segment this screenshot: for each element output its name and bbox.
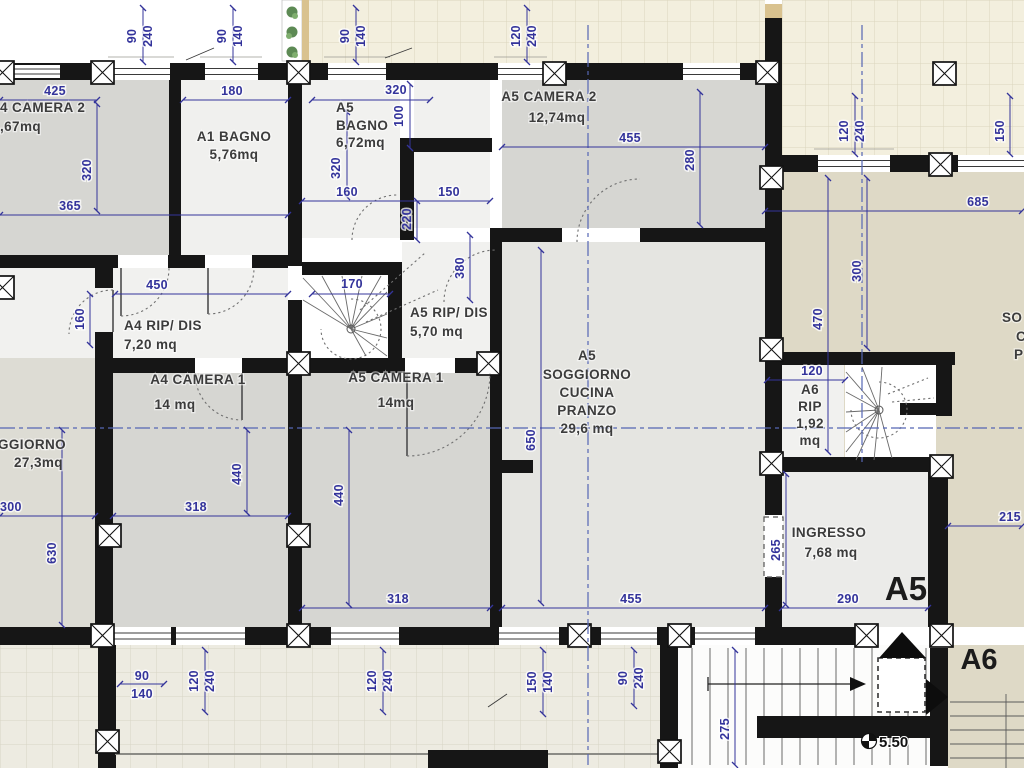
- dim-440-left: 440: [230, 463, 244, 485]
- door-opening: [176, 627, 245, 645]
- dim-320-top: 320: [385, 83, 407, 97]
- win-dim-150: 150: [993, 120, 1007, 142]
- room-a5-bagno-l2: BAGNO: [336, 118, 388, 133]
- dim-318-right: 318: [387, 592, 409, 606]
- floorplan-drawing: 5.50 425 180 320 365 450 170 455 685 160…: [0, 0, 1024, 768]
- room-a5-soggiorno-l3: CUCINA: [560, 385, 615, 400]
- room-soggiorno-left-area: 27,3mq: [14, 455, 63, 470]
- dim-180: 180: [221, 84, 243, 98]
- room-a5-soggiorno-l4: PRANZO: [557, 403, 616, 418]
- win-dim-120: 120: [509, 25, 523, 47]
- pillar: [760, 338, 783, 361]
- room-a1-bagno-name: A1 BAGNO: [197, 129, 271, 144]
- dim-265: 265: [769, 539, 783, 561]
- dim-280: 280: [683, 149, 697, 171]
- pillar: [287, 352, 310, 375]
- level-marker: 5.50: [862, 734, 909, 752]
- room-ingresso-name: INGRESSO: [792, 525, 866, 540]
- dim-318-left: 318: [185, 500, 207, 514]
- window: [683, 63, 740, 80]
- room-a5-camera2-area: 12,74mq: [529, 110, 586, 125]
- level-value: 5.50: [879, 734, 908, 751]
- dim-170: 170: [341, 277, 363, 291]
- dim-120-a6: 120: [801, 364, 823, 378]
- pillar: [760, 452, 783, 475]
- dim-455-top: 455: [619, 131, 641, 145]
- room-a6-rip-l1: A6: [801, 382, 819, 397]
- pillar: [855, 624, 878, 647]
- window: [818, 155, 890, 172]
- win-dim-240: 240: [203, 670, 217, 692]
- win-dim-120: 120: [837, 120, 851, 142]
- pillar: [477, 352, 500, 375]
- room-a4-camera1-name: A4 CAMERA 1: [150, 372, 246, 387]
- room-a5-camera1-name: A5 CAMERA 1: [348, 370, 444, 385]
- room-a4-camera2-area: ,67mq: [0, 119, 41, 134]
- win-dim-140: 140: [541, 671, 555, 693]
- plant-icon: [286, 7, 298, 59]
- room-ingresso-area: 7,68 mq: [804, 545, 857, 560]
- room-a5-bagno-l1: A5: [336, 100, 354, 115]
- pillar: [287, 624, 310, 647]
- pillar: [929, 153, 952, 176]
- window: [498, 63, 543, 80]
- room-a5-soggiorno-l2: SOGGIORNO: [543, 367, 631, 382]
- pillar: [760, 166, 783, 189]
- room-soggiorno-left-name: GGIORNO: [0, 437, 66, 452]
- floorplan-canvas: 5.50 425 180 320 365 450 170 455 685 160…: [0, 0, 1024, 768]
- win-dim-240: 240: [141, 25, 155, 47]
- room-a4-camera2-name: 4 CAMERA 2: [0, 100, 85, 115]
- win-dim-120: 120: [365, 670, 379, 692]
- window: [112, 63, 170, 80]
- window: [113, 627, 171, 645]
- pillar: [756, 61, 779, 84]
- pillar: [668, 624, 691, 647]
- dim-650: 650: [524, 429, 538, 451]
- dim-300-right: 300: [850, 260, 864, 282]
- dim-440-right: 440: [332, 484, 346, 506]
- dim-455-bottom: 455: [620, 592, 642, 606]
- window: [499, 627, 559, 645]
- room-a6-soggiorno-frag3: P: [1014, 347, 1023, 362]
- pillar: [0, 276, 14, 299]
- room-a5-soggiorno-l1: A5: [578, 348, 596, 363]
- window: [958, 155, 1024, 172]
- dim-450: 450: [146, 278, 168, 292]
- win-dim-240: 240: [381, 670, 395, 692]
- pillar: [930, 455, 953, 478]
- room-a6-soggiorno-frag1: SO: [1002, 310, 1022, 325]
- win-dim-240: 240: [525, 25, 539, 47]
- window: [205, 63, 258, 80]
- win-dim-90: 90: [616, 671, 630, 686]
- room-a6-rip-l2: RIP: [798, 399, 822, 414]
- win-dim-150: 150: [525, 671, 539, 693]
- pillar: [91, 624, 114, 647]
- pillar: [0, 61, 14, 84]
- win-dim-90: 90: [125, 29, 139, 44]
- room-a4-rip-area: 7,20 mq: [124, 337, 177, 352]
- room-a5-rip-name: A5 RIP/ DIS: [410, 305, 488, 320]
- dim-685: 685: [967, 195, 989, 209]
- win-dim-140: 140: [231, 25, 245, 47]
- pillar-freestanding: [933, 62, 956, 85]
- dim-160-bagno: 160: [336, 185, 358, 199]
- dim-220: 220: [400, 208, 414, 230]
- room-a5-soggiorno-area: 29,6 mq: [560, 421, 613, 436]
- pillar: [930, 624, 953, 647]
- room-a1-bagno-area: 5,76mq: [210, 147, 259, 162]
- dim-150-mid: 150: [438, 185, 460, 199]
- win-dim-90: 90: [135, 669, 150, 683]
- window: [328, 63, 386, 80]
- room-a5-rip-area: 5,70 mq: [410, 324, 463, 339]
- pillar: [287, 524, 310, 547]
- win-dim-90: 90: [338, 29, 352, 44]
- win-dim-90: 90: [215, 29, 229, 44]
- planter-strip: [282, 0, 309, 61]
- door-opening: [695, 627, 755, 645]
- dim-275: 275: [718, 718, 732, 740]
- room-a6-rip-l4: mq: [799, 433, 820, 448]
- pillar: [658, 740, 681, 763]
- win-dim-240: 240: [632, 667, 646, 689]
- dim-320-bagno: 320: [329, 157, 343, 179]
- pillar: [96, 730, 119, 753]
- room-a4-rip-name: A4 RIP/ DIS: [124, 318, 202, 333]
- dim-380: 380: [453, 257, 467, 279]
- room-a5-bagno-area: 6,72mq: [336, 135, 385, 150]
- dim-320-left: 320: [80, 159, 94, 181]
- dim-215: 215: [999, 510, 1021, 524]
- dim-100: 100: [392, 105, 406, 127]
- dim-365: 365: [59, 199, 81, 213]
- win-dim-140: 140: [131, 687, 153, 701]
- pillar: [91, 61, 114, 84]
- window: [331, 627, 399, 645]
- win-dim-120: 120: [187, 670, 201, 692]
- dim-470: 470: [811, 308, 825, 330]
- window: [601, 627, 657, 645]
- pillar: [287, 61, 310, 84]
- unit-a5-label: A5: [885, 570, 927, 607]
- unit-a6-label: A6: [960, 644, 997, 676]
- room-a6-soggiorno-frag2: C: [1016, 329, 1024, 344]
- room-a4-camera1-area: 14 mq: [154, 397, 195, 412]
- dim-425: 425: [44, 84, 66, 98]
- win-dim-240: 240: [853, 120, 867, 142]
- room-a5-camera1-area: 14mq: [378, 395, 415, 410]
- room-a6-rip-l3: 1,92: [796, 416, 824, 431]
- dim-160-rip: 160: [73, 308, 87, 330]
- dim-290: 290: [837, 592, 859, 606]
- dim-630: 630: [45, 542, 59, 564]
- dim-300-left: 300: [0, 500, 22, 514]
- win-dim-140: 140: [354, 25, 368, 47]
- pillar: [98, 524, 121, 547]
- room-a5-camera2-name: A5 CAMERA 2: [501, 89, 596, 104]
- pillar: [543, 62, 566, 85]
